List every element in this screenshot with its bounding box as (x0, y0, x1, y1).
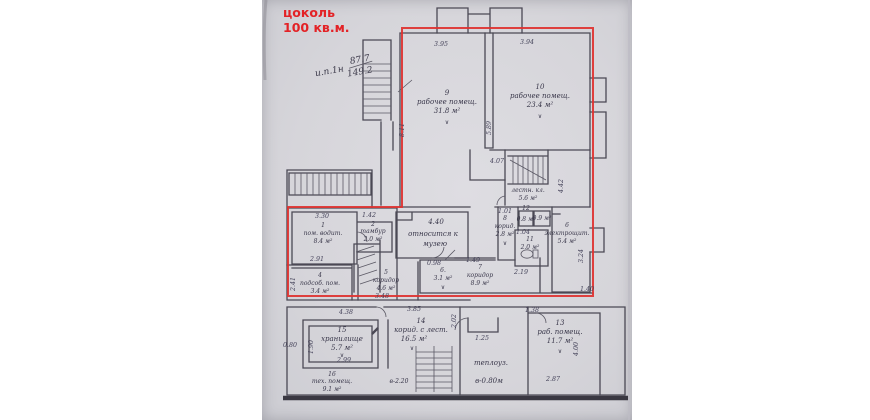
room-label-9: 9 рабочее помещ. 31.8 м² ∨ (417, 89, 477, 126)
room-area: 3.4 м² (311, 288, 330, 295)
annotation-line2: 100 кв.м. (283, 20, 350, 35)
floor-plan-drawing: цоколь 100 кв.м. и.п.1н 87.7 149.2 9 раб… (0, 0, 870, 420)
dimension-label: 4.38 (338, 309, 353, 316)
room-number: 8 (503, 215, 507, 222)
room-number: 13 (556, 319, 565, 327)
room-label-1: 1 пом. водит. 8.4 м² (304, 222, 343, 245)
annotation-line1: цоколь (283, 5, 335, 20)
room-number: 16 (328, 371, 336, 378)
room-area: 5.4 м² (558, 238, 577, 245)
scanned-floor-plan-page: цоколь 100 кв.м. и.п.1н 87.7 149.2 9 раб… (0, 0, 870, 420)
dimension-label: 3.85 (407, 306, 421, 313)
dimension-label: 1.40 (580, 286, 594, 293)
dimension-label: 8.11 (399, 123, 406, 137)
room-label-11: 11 2.0 м² (520, 236, 540, 251)
dimension-label: 2.87 (545, 376, 560, 383)
dimension-label: 4.00 (573, 342, 580, 357)
room-name: корид. с лест. (394, 326, 448, 334)
room-area: 16.5 м² (401, 335, 428, 343)
dimension-label: 3.95 (434, 41, 448, 48)
dimension-label: 4.40 (427, 218, 444, 226)
room-label-14: 14 корид. с лест. 16.5 м² ∨ в-2.20 (390, 317, 448, 385)
dimension-label: 3.24 (578, 249, 585, 263)
room-area: 2.0 м² (363, 236, 383, 243)
room-label-2: 2 тамбур 2.0 м² (360, 221, 385, 243)
room-area: 9.1 м² (323, 386, 342, 393)
note-label: и.п.1н (314, 64, 344, 79)
room-name: пом. водит. (304, 230, 343, 237)
height-note: в-0.80м (475, 377, 503, 385)
room-label-4: 4 подсоб. пом. 3.4 м² (300, 272, 340, 295)
room-label-10: 10 рабочее помещ. 23.4 м² ∨ (510, 83, 570, 120)
room-area: 5.6 м² (519, 195, 538, 202)
room-label-6: 6. 3.1 м² ∨ (434, 267, 453, 291)
dimension-label: 0.80 (283, 342, 297, 349)
dimension-label: 4.42 (558, 179, 565, 194)
dimension-label: 2.41 (290, 277, 297, 292)
room-name: подсоб. пом. (300, 280, 340, 287)
room-area: 5.7 м² (331, 344, 353, 352)
checkmark: ∨ (445, 119, 449, 126)
room-number: 11 (526, 236, 534, 243)
room-name: рабочее помещ. (510, 92, 570, 100)
dimension-label: 2.02 (451, 314, 458, 329)
room-number: 12 (522, 205, 530, 212)
red-annotation: цоколь 100 кв.м. (283, 5, 350, 35)
room-area: 4.6 м² (376, 285, 396, 292)
room-number: 15 (338, 326, 347, 334)
room-label-16: 16 тех. помещ. 9.1 м² (312, 371, 352, 393)
dimension-label: 2.19 (513, 269, 528, 276)
room-number: 6. (440, 267, 446, 274)
dimension-label: 3.94 (520, 39, 534, 46)
room-area: 23.4 м² (526, 101, 554, 109)
room-number: 1 (321, 222, 325, 229)
room-area: 3.1 м² (434, 275, 453, 282)
dimension-label: 1.49 (466, 257, 480, 264)
checkmark: ∨ (558, 348, 562, 355)
dimension-label: 5.89 (486, 121, 493, 135)
checkmark: ∨ (503, 240, 507, 247)
room-name: лестн. кл. (511, 187, 545, 194)
room-area: 8.9 м² (471, 280, 490, 287)
room-area: 2.8 м² (495, 231, 515, 238)
room-number: 10 (536, 83, 545, 91)
room-number: 7 (478, 264, 482, 271)
dimension-label: 1.25 (475, 335, 489, 342)
dimension-label: 2.99 (336, 357, 351, 364)
room-area: 31.8 м² (434, 107, 461, 115)
room-name: коридор (467, 272, 493, 279)
room-label-elec: 6 электрощит. 5.4 м² (545, 222, 590, 245)
room-label-staircell: лестн. кл. 5.6 м² (511, 187, 545, 202)
dimension-label: 1.42 (362, 212, 376, 219)
dimension-label: 1.01 (498, 208, 512, 215)
room-number: 4 (317, 272, 322, 279)
room-name: раб. помещ. (537, 328, 582, 336)
room-name: рабочее помещ. (417, 98, 477, 106)
room-label-heat: теплоуз. в-0.80м (474, 359, 508, 385)
room-number: 14 (417, 317, 426, 325)
room-number: 6 (565, 222, 569, 229)
room-area: 2.0 м² (520, 244, 540, 251)
room-name: коридор (373, 277, 399, 284)
room-area: 8.4 м² (314, 238, 333, 245)
room-area: 0.9 м² (533, 215, 552, 222)
room-label-museum: 4.40 относится к музею (408, 218, 459, 248)
checkmark: ∨ (410, 345, 414, 352)
room-label-7: 7 коридор 8.9 м² (467, 264, 493, 287)
room-label-5: 5 коридор 4.6 м² (373, 269, 399, 292)
room-label-15: 15 хранилище 5.7 м² ∨ (321, 326, 363, 359)
room-name: корид. (495, 223, 516, 230)
room-name: музею (423, 240, 447, 248)
dimension-label: 2.91 (309, 256, 324, 263)
checkmark: ∨ (538, 113, 542, 120)
room-number: 9 (445, 89, 450, 97)
dimension-label: 4.07 (489, 158, 504, 165)
dimension-label: 3.48 (375, 293, 389, 300)
dimension-label: 1.04 (516, 229, 530, 236)
room-number: 5 (384, 269, 388, 276)
room-name: теплоуз. (474, 359, 508, 367)
room-area: 11.7 м² (547, 337, 574, 345)
checkmark: ∨ (441, 284, 445, 291)
note-lower: 149.2 (346, 65, 373, 79)
room-name: относится к (408, 230, 459, 238)
dimension-label: 0.98 (427, 260, 441, 267)
dimension-label: 1.38 (525, 307, 539, 314)
room-name: тех. помещ. (312, 378, 352, 385)
room-name: электрощит. (545, 230, 590, 237)
room-name: хранилище (321, 335, 363, 343)
dimension-label: 1.90 (308, 340, 315, 354)
handwritten-note: и.п.1н 87.7 149.2 (313, 53, 374, 85)
height-note: в-2.20 (390, 378, 409, 385)
room-name: тамбур (360, 228, 385, 235)
room-number: 2 (370, 221, 375, 228)
dimension-label: 3.30 (315, 213, 329, 220)
toilet-icon (521, 250, 538, 258)
